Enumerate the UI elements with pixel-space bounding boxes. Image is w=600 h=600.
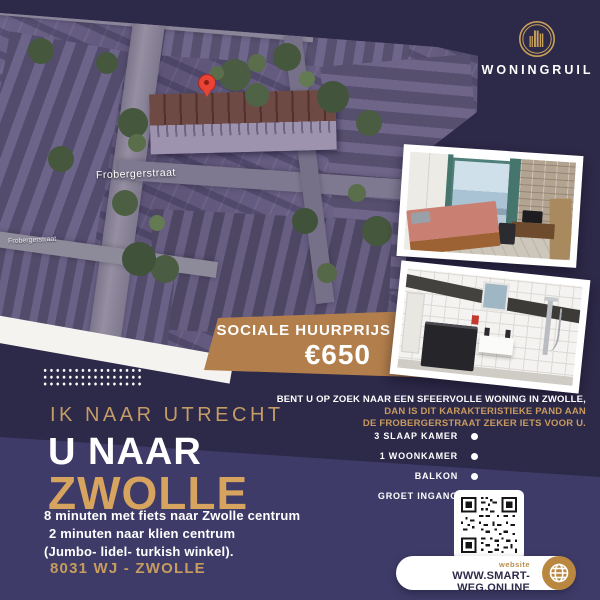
- brand-logo-icon: [518, 20, 556, 63]
- pitch-line: DAN IS DIT KARAKTERISTIEKE PAND AAN: [277, 406, 586, 418]
- headline-from: IK NAAR UTRECHT: [50, 404, 284, 427]
- bullet-icon: [471, 433, 478, 440]
- website-pill[interactable]: website WWW.SMART-WEG.ONLINE: [396, 556, 574, 590]
- feature-label: GROET INGANG: [378, 491, 458, 501]
- feature-item: 1 WOONKAMER: [374, 451, 478, 461]
- details-text: 8 minuten met fiets naar Zwolle centrum …: [44, 507, 300, 561]
- bathroom-tub: [420, 321, 477, 371]
- map-apartment-building: [149, 90, 337, 155]
- bedroom-photo: [396, 144, 583, 268]
- bullet-icon: [471, 453, 478, 460]
- bathroom-sink: [479, 335, 514, 355]
- feature-label: 3 SLAAP KAMER: [374, 431, 458, 441]
- pitch-paragraph: BENT U OP ZOEK NAAR EEN SFEERVOLLE WONIN…: [277, 394, 586, 430]
- bedroom-monitor: [522, 210, 543, 223]
- website-text: website WWW.SMART-WEG.ONLINE: [396, 560, 530, 594]
- qr-code[interactable]: [454, 490, 524, 560]
- website-url: WWW.SMART-WEG.ONLINE: [396, 570, 530, 594]
- bedroom-chair: [497, 222, 515, 245]
- details-line: 2 minuten naar klien centrum: [49, 525, 300, 543]
- bullet-icon: [471, 473, 478, 480]
- feature-label: BALKON: [415, 471, 458, 481]
- globe-icon: [542, 556, 576, 590]
- dots-pattern: [42, 367, 142, 388]
- bedroom-desk: [511, 221, 555, 239]
- bathroom-bottle: [484, 327, 490, 336]
- bedroom-pillow: [410, 211, 431, 225]
- website-label: website: [396, 560, 530, 569]
- bathroom-red-item: [471, 315, 479, 325]
- bathroom-bottle: [505, 330, 511, 339]
- price-banner-label: SOCIALE HUURPRIJS: [216, 322, 391, 339]
- price-banner-price: €650: [305, 339, 371, 371]
- details-line: (Jumbo- lidel- turkish winkel).: [44, 543, 300, 561]
- location-pin-icon: [198, 74, 216, 92]
- bathroom-photo: [390, 260, 591, 393]
- feature-label: 1 WOONKAMER: [380, 451, 458, 461]
- pitch-line: DE FROBERGERSTRAAT ZEKER IETS VOOR U.: [277, 418, 586, 430]
- brand-name: WONINGRUIL: [480, 63, 595, 77]
- pitch-line: BENT U OP ZOEK NAAR EEN SFEERVOLLE WONIN…: [277, 394, 586, 406]
- map-trees: [96, 52, 118, 74]
- feature-item: 3 SLAAP KAMER: [374, 431, 478, 441]
- bathroom-mirror: [481, 281, 509, 311]
- postcode: 8031 WJ - ZWOLLE: [50, 560, 206, 577]
- feature-item: BALKON: [374, 471, 478, 481]
- woningruil-poster: Frobergerstraat Frobergerstraat SOCIALE …: [0, 0, 600, 600]
- details-line: 8 minuten met fiets naar Zwolle centrum: [44, 507, 300, 525]
